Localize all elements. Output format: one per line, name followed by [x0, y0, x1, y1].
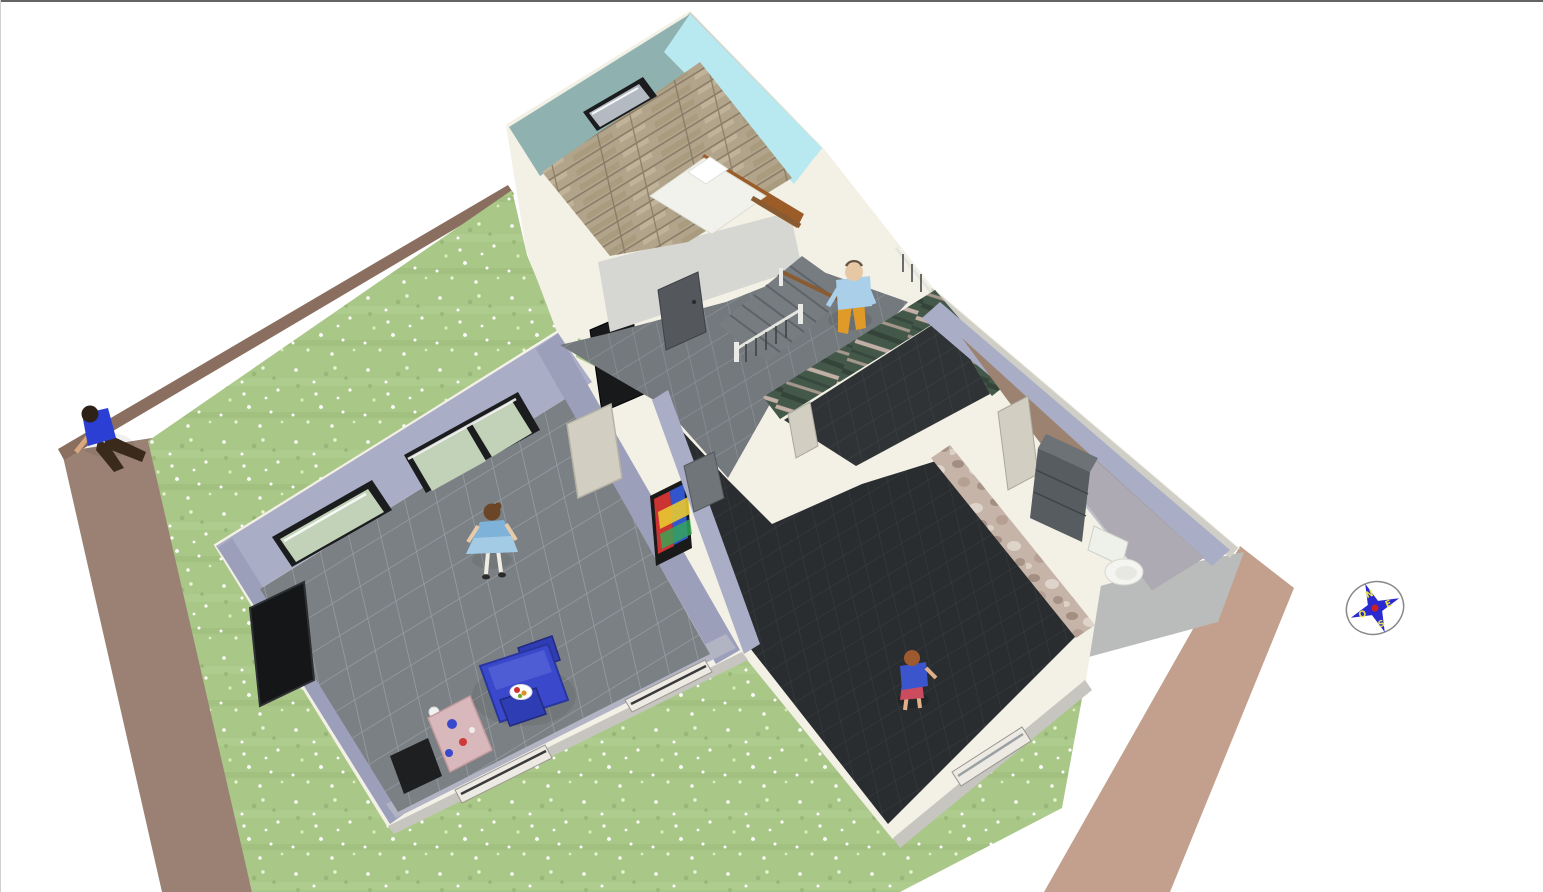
- toilet-seat: [1115, 566, 1137, 580]
- fruit-green: [518, 694, 522, 698]
- newel-post: [798, 304, 803, 324]
- counter-pot-red: [459, 738, 467, 746]
- window-left-border: [0, 0, 1, 892]
- person-head: [845, 263, 863, 281]
- person-hair-bun: [495, 503, 502, 510]
- counter-pot-blue: [447, 719, 457, 729]
- fruit-orange: [521, 690, 526, 695]
- person-torso: [836, 276, 872, 310]
- counter-pot-blue-2: [445, 749, 453, 757]
- person-shoe: [482, 575, 490, 580]
- person-head: [904, 650, 920, 666]
- person-leg: [486, 552, 488, 574]
- newel-post: [734, 342, 739, 362]
- door-handle: [692, 300, 696, 304]
- person-torso: [900, 662, 928, 690]
- render-viewport: N E S O: [0, 0, 1543, 892]
- person-dress-skirt: [466, 536, 518, 554]
- counter-dish: [469, 727, 475, 733]
- compass[interactable]: N E S O: [1338, 573, 1411, 643]
- person-head: [82, 406, 99, 423]
- fruit-apple: [514, 687, 520, 693]
- home-3d-scene: N E S O: [0, 0, 1543, 892]
- person-shoe: [498, 573, 506, 578]
